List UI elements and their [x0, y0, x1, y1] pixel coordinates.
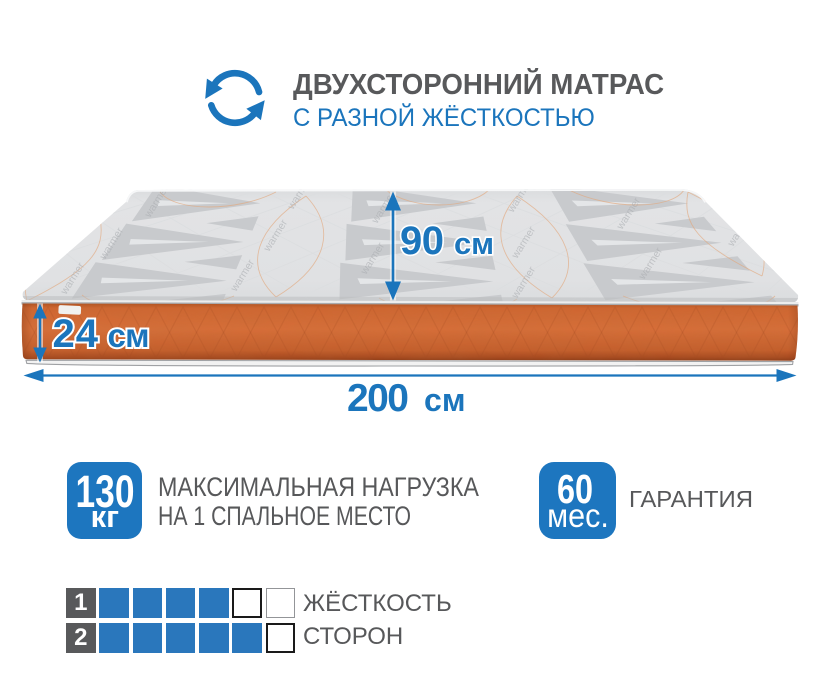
svg-text:90: 90 — [400, 219, 444, 263]
svg-text:см: см — [424, 382, 466, 418]
svg-text:см: см — [108, 317, 150, 354]
svg-text:см: см — [454, 226, 494, 261]
svg-text:200: 200 — [347, 377, 409, 420]
svg-text:24: 24 — [53, 312, 99, 356]
